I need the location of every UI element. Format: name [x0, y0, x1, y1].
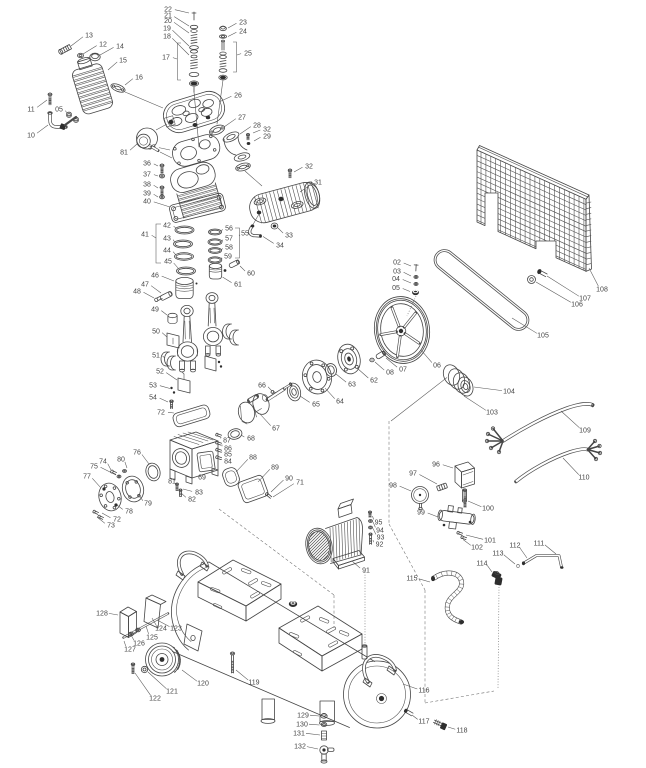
- svg-text:32: 32: [305, 164, 313, 171]
- svg-text:12: 12: [99, 42, 107, 49]
- svg-text:93: 93: [377, 535, 385, 542]
- svg-text:94: 94: [376, 528, 384, 535]
- svg-text:45: 45: [164, 259, 172, 266]
- svg-text:48: 48: [133, 289, 141, 296]
- svg-text:61: 61: [234, 282, 242, 289]
- svg-text:85: 85: [224, 452, 232, 459]
- svg-text:58: 58: [225, 245, 233, 252]
- svg-text:100: 100: [482, 506, 494, 513]
- svg-text:65: 65: [312, 402, 320, 409]
- svg-text:113: 113: [492, 551, 503, 558]
- svg-text:59: 59: [224, 254, 232, 261]
- svg-text:49: 49: [151, 307, 159, 314]
- svg-text:116: 116: [418, 688, 429, 695]
- svg-text:11: 11: [27, 107, 34, 114]
- svg-text:50: 50: [152, 329, 160, 336]
- svg-text:96: 96: [432, 462, 440, 469]
- svg-text:57: 57: [225, 236, 233, 243]
- svg-text:121: 121: [166, 689, 178, 696]
- svg-text:81: 81: [120, 150, 128, 157]
- svg-text:78: 78: [125, 509, 133, 516]
- svg-text:51: 51: [152, 353, 160, 360]
- svg-text:102: 102: [471, 545, 483, 552]
- svg-text:07: 07: [399, 367, 407, 374]
- svg-text:02: 02: [393, 260, 401, 267]
- svg-text:98: 98: [389, 483, 397, 490]
- svg-text:40: 40: [143, 199, 151, 206]
- svg-text:06: 06: [433, 363, 441, 370]
- svg-text:37: 37: [143, 172, 151, 179]
- svg-text:42: 42: [163, 223, 171, 230]
- svg-text:88: 88: [249, 455, 257, 462]
- svg-text:92: 92: [376, 542, 384, 549]
- svg-text:20: 20: [164, 18, 172, 25]
- svg-text:129: 129: [297, 713, 309, 720]
- svg-text:110: 110: [578, 475, 589, 482]
- svg-text:109: 109: [579, 428, 591, 435]
- svg-text:81: 81: [168, 479, 176, 486]
- svg-text:46: 46: [151, 273, 159, 280]
- svg-text:66: 66: [258, 383, 266, 390]
- svg-text:80: 80: [117, 457, 125, 464]
- svg-text:95: 95: [375, 520, 383, 527]
- svg-text:44: 44: [163, 248, 171, 255]
- svg-text:13: 13: [85, 33, 93, 40]
- svg-text:105: 105: [537, 333, 549, 340]
- svg-text:82: 82: [188, 497, 196, 504]
- svg-text:124: 124: [155, 626, 167, 633]
- svg-text:23: 23: [239, 20, 247, 27]
- svg-text:03: 03: [393, 269, 401, 276]
- svg-text:112: 112: [509, 543, 520, 550]
- svg-text:32: 32: [263, 127, 271, 134]
- svg-text:27: 27: [238, 115, 246, 122]
- svg-text:29: 29: [263, 134, 271, 141]
- svg-text:24: 24: [239, 29, 247, 36]
- svg-text:111: 111: [534, 541, 545, 548]
- svg-text:123: 123: [170, 626, 182, 633]
- svg-text:127: 127: [124, 647, 136, 654]
- svg-text:08: 08: [386, 370, 394, 377]
- svg-text:79: 79: [144, 501, 152, 508]
- svg-text:87: 87: [223, 438, 231, 445]
- svg-text:97: 97: [409, 471, 417, 478]
- svg-text:125: 125: [146, 635, 158, 642]
- svg-text:33: 33: [285, 233, 293, 240]
- svg-text:122: 122: [149, 696, 161, 703]
- svg-text:14: 14: [116, 44, 124, 51]
- svg-text:71: 71: [296, 480, 304, 487]
- svg-text:15: 15: [119, 58, 127, 65]
- svg-text:63: 63: [348, 382, 356, 389]
- svg-text:99: 99: [417, 510, 425, 517]
- svg-text:104: 104: [503, 389, 515, 396]
- svg-text:62: 62: [370, 378, 378, 385]
- svg-text:117: 117: [418, 719, 429, 726]
- svg-text:36: 36: [143, 161, 151, 168]
- svg-text:28: 28: [253, 123, 261, 130]
- svg-text:103: 103: [486, 410, 498, 417]
- svg-text:106: 106: [571, 302, 583, 309]
- svg-text:128: 128: [96, 611, 108, 618]
- svg-text:17: 17: [162, 55, 170, 62]
- svg-text:114: 114: [476, 561, 487, 568]
- svg-text:132: 132: [294, 744, 306, 751]
- svg-text:119: 119: [248, 680, 259, 687]
- svg-text:60: 60: [247, 271, 255, 278]
- svg-text:120: 120: [197, 681, 209, 688]
- svg-text:73: 73: [107, 523, 115, 530]
- svg-text:91: 91: [362, 568, 370, 575]
- svg-text:83: 83: [195, 490, 203, 497]
- svg-text:25: 25: [244, 51, 252, 58]
- svg-text:67: 67: [272, 426, 280, 433]
- svg-text:64: 64: [336, 399, 344, 406]
- svg-text:39: 39: [143, 191, 151, 198]
- svg-text:130: 130: [296, 722, 308, 729]
- svg-text:101: 101: [484, 538, 496, 545]
- svg-text:05: 05: [55, 107, 63, 114]
- svg-text:77: 77: [83, 474, 91, 481]
- svg-text:41: 41: [141, 232, 149, 239]
- svg-text:108: 108: [596, 287, 608, 294]
- svg-text:52: 52: [156, 369, 164, 376]
- svg-text:69: 69: [198, 475, 206, 482]
- svg-text:04: 04: [392, 276, 400, 283]
- svg-text:115: 115: [406, 576, 417, 583]
- svg-text:26: 26: [234, 93, 242, 100]
- svg-text:34: 34: [276, 243, 284, 250]
- svg-text:16: 16: [135, 75, 143, 82]
- svg-text:84: 84: [224, 459, 232, 466]
- svg-text:72: 72: [157, 410, 165, 417]
- svg-text:10: 10: [27, 133, 35, 140]
- svg-text:68: 68: [247, 436, 255, 443]
- svg-text:05: 05: [392, 285, 400, 292]
- svg-text:75: 75: [90, 464, 98, 471]
- svg-text:131: 131: [293, 731, 305, 738]
- svg-text:76: 76: [133, 450, 141, 457]
- svg-text:38: 38: [143, 182, 151, 189]
- svg-text:89: 89: [271, 465, 279, 472]
- svg-text:54: 54: [149, 395, 157, 402]
- svg-text:18: 18: [163, 34, 171, 41]
- svg-text:90: 90: [285, 476, 293, 483]
- svg-text:47: 47: [141, 282, 149, 289]
- svg-text:56: 56: [225, 226, 233, 233]
- svg-text:118: 118: [456, 728, 467, 735]
- svg-text:43: 43: [163, 236, 171, 243]
- svg-text:53: 53: [149, 383, 157, 390]
- svg-text:31: 31: [314, 180, 322, 187]
- svg-text:55: 55: [241, 231, 249, 238]
- svg-text:19: 19: [163, 26, 171, 33]
- svg-text:74: 74: [99, 459, 107, 466]
